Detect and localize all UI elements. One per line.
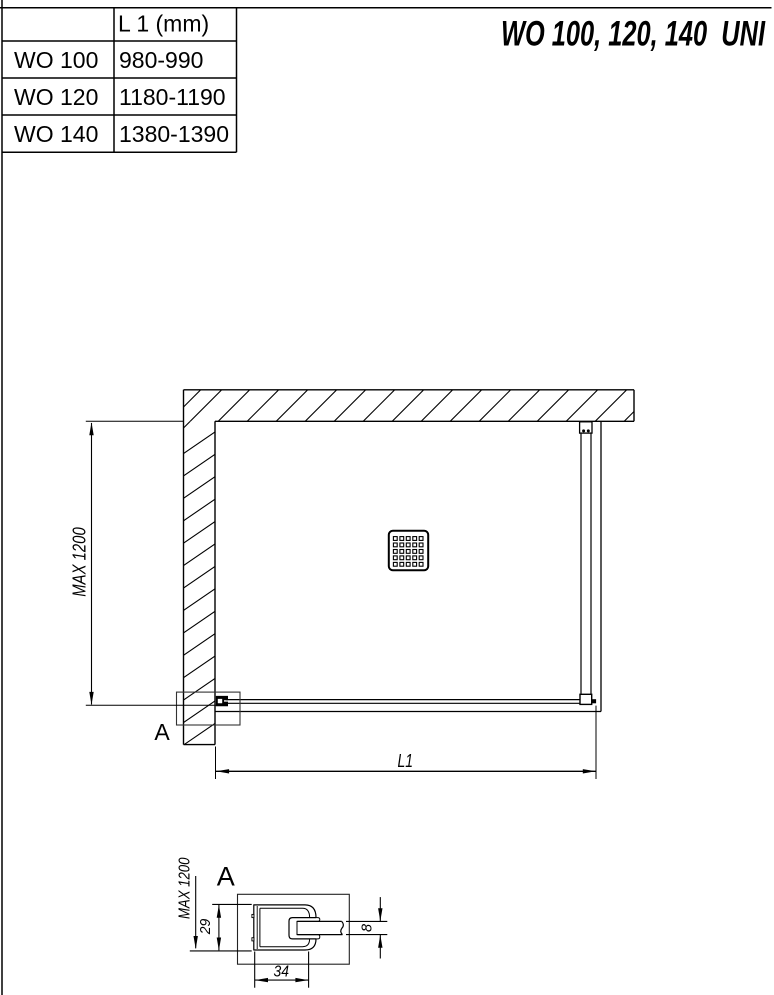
svg-text:WO 100, 120, 140 UNI: WO 100, 120, 140 UNI [501, 15, 766, 54]
svg-text:34: 34 [274, 963, 290, 980]
svg-text:1380-1390: 1380-1390 [119, 121, 229, 147]
svg-text:WO 100: WO 100 [14, 47, 98, 73]
svg-text:MAX 1200: MAX 1200 [177, 857, 194, 919]
svg-text:MAX 1200: MAX 1200 [70, 527, 90, 597]
svg-text:L 1 (mm): L 1 (mm) [118, 11, 209, 37]
svg-text:29: 29 [198, 919, 214, 935]
svg-text:WO 140: WO 140 [14, 121, 98, 147]
svg-text:WO 120: WO 120 [14, 84, 98, 110]
svg-text:1180-1190: 1180-1190 [119, 84, 226, 110]
svg-text:A: A [217, 862, 235, 892]
svg-text:8: 8 [360, 924, 376, 932]
svg-text:980-990: 980-990 [119, 47, 203, 73]
svg-text:A: A [154, 719, 170, 745]
svg-text:L1: L1 [398, 750, 414, 771]
